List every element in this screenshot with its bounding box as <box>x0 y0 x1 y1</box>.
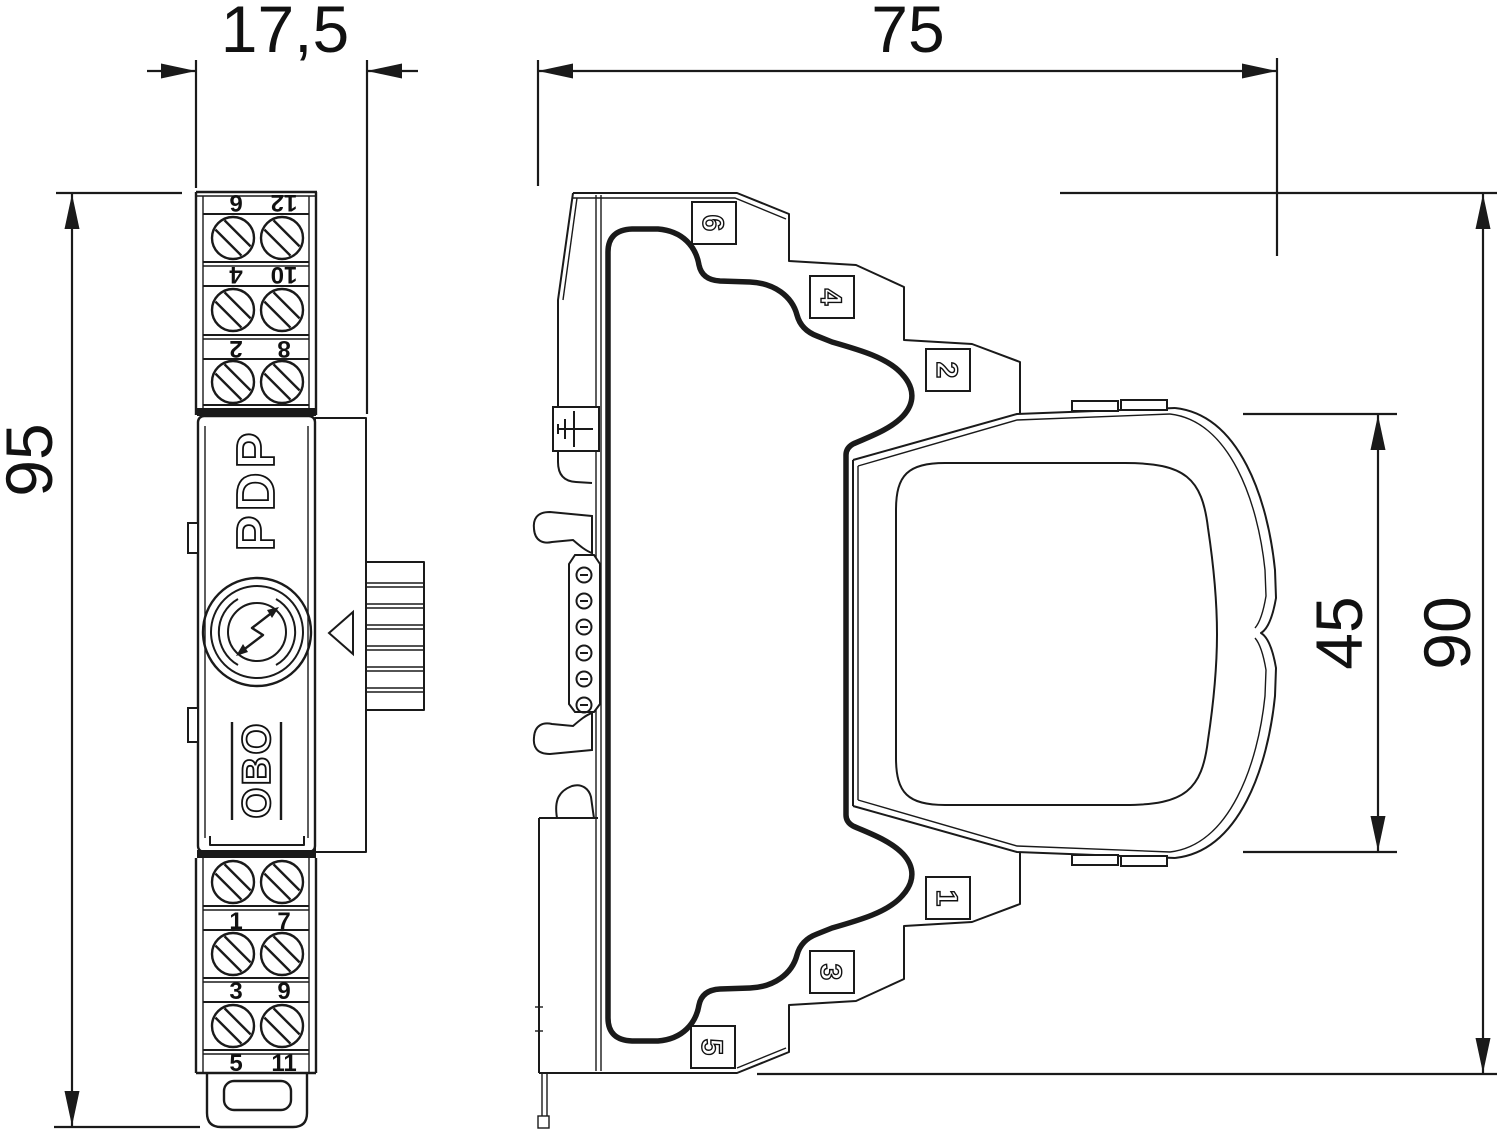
terminal-number: 8 <box>277 335 290 362</box>
latch-lever <box>556 785 594 818</box>
terminal-number: 10 <box>271 261 298 288</box>
screw-terminal <box>212 933 254 975</box>
din-rail-hook <box>534 512 592 553</box>
arrowhead-icon <box>65 1091 80 1126</box>
base-cross-section <box>608 229 912 1041</box>
terminal-number: 12 <box>271 189 298 216</box>
brand-label: OBO <box>235 721 279 818</box>
lightning-bolt-icon <box>242 611 274 651</box>
terminal-number: 11 <box>271 1050 296 1077</box>
screw-terminal <box>212 289 254 331</box>
marker-number: 6 <box>696 215 729 232</box>
dim-front-height: 95 <box>0 193 200 1127</box>
plug-connector-fins <box>366 562 424 710</box>
arrowhead-icon <box>1476 194 1491 229</box>
arrowhead-icon <box>1242 64 1277 79</box>
screw-terminal <box>212 1005 254 1047</box>
latch-tab <box>1072 855 1118 865</box>
marker-number: 3 <box>814 964 847 981</box>
din-rail-mount <box>534 512 600 818</box>
arrowhead-icon <box>1371 816 1386 851</box>
marker-number: 4 <box>814 289 847 306</box>
module-front-curve <box>1175 408 1276 858</box>
arrowhead-icon <box>538 64 573 79</box>
screw-terminal <box>212 861 254 903</box>
screw-terminal <box>212 361 254 403</box>
dim-module-height: 45 <box>1243 414 1397 852</box>
arrowhead-icon <box>1476 1038 1491 1073</box>
drawing-canvas: 6 12 4 10 2 8 <box>0 0 1500 1130</box>
screw-terminal <box>261 933 303 975</box>
plug-in-module <box>853 400 1276 866</box>
marker-number: 1 <box>930 890 963 907</box>
arrowhead-icon <box>161 64 196 79</box>
product-label: PDP <box>226 428 286 551</box>
terminal-number: 6 <box>229 189 242 216</box>
terminal-number: 4 <box>229 261 243 288</box>
terminal-number: 2 <box>229 335 242 362</box>
front-view: 6 12 4 10 2 8 <box>188 189 424 1127</box>
terminal-number: 9 <box>277 978 290 1005</box>
terminal-markers: 6 4 2 1 3 5 <box>553 202 970 1068</box>
screw-terminal <box>261 861 303 903</box>
device-body: PDP OBO <box>188 416 424 858</box>
terminal-number: 1 <box>229 908 242 935</box>
dim-value-front-width: 17,5 <box>221 0 349 66</box>
side-view: 6 4 2 1 3 5 <box>534 193 1276 1128</box>
terminal-number: 5 <box>229 1050 242 1077</box>
earth-ground-icon <box>553 407 599 451</box>
dim-value-side-depth: 75 <box>871 0 944 66</box>
screw-terminal <box>261 1005 303 1047</box>
arrowhead-icon <box>367 64 402 79</box>
release-tab <box>188 523 198 553</box>
latch-tab <box>1121 400 1167 410</box>
dim-side-height: 90 <box>757 193 1497 1074</box>
screw-terminal <box>261 289 303 331</box>
screw-terminal <box>212 217 254 259</box>
marker-number: 2 <box>930 362 963 379</box>
top-terminal-block: 6 12 4 10 2 8 <box>196 189 317 416</box>
dim-value-front-height: 95 <box>0 423 66 496</box>
foot-slot <box>224 1081 291 1110</box>
alignment-triangle-icon <box>329 612 353 654</box>
dimension-drawing-page: 6 12 4 10 2 8 <box>0 0 1500 1130</box>
marker-number: 5 <box>695 1039 728 1056</box>
latch-tab <box>1121 856 1167 866</box>
release-tab <box>188 708 198 742</box>
foot-tab <box>538 1116 549 1128</box>
block-divider-band <box>197 850 316 858</box>
dim-value-side-height: 90 <box>1410 596 1484 669</box>
terminal-number: 3 <box>229 978 242 1005</box>
din-rail-hook <box>534 713 592 754</box>
arrowhead-icon <box>1371 415 1386 450</box>
screw-terminal <box>261 361 303 403</box>
arrowhead-icon <box>65 194 80 229</box>
terminal-number: 7 <box>277 908 290 935</box>
module-label-face <box>896 463 1217 805</box>
latch-tab <box>1072 401 1118 411</box>
dim-value-module-height: 45 <box>1302 596 1376 669</box>
screw-terminal <box>261 217 303 259</box>
surge-lightning-logo <box>203 578 311 686</box>
bottom-terminal-block: 1 7 3 9 5 11 <box>196 858 316 1077</box>
dim-side-depth: 75 <box>538 0 1277 256</box>
face-inner-bracket <box>210 836 304 845</box>
mounting-foot <box>207 1073 307 1127</box>
